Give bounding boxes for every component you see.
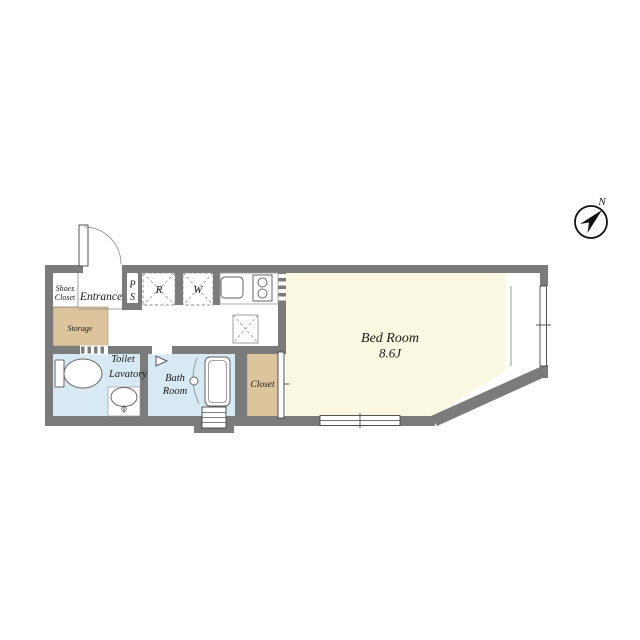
toilet-lavatory-label-2: Lavatory <box>108 369 147 380</box>
bedroom-size-label: 8.6J <box>379 346 402 361</box>
floorplan-canvas: Shoes Closet Entrance Storage P S R W To… <box>0 0 640 640</box>
wall-left <box>45 265 53 426</box>
compass-north-label: N <box>597 196 606 208</box>
closet-label: Closet <box>250 380 275 390</box>
entrance-door-leaf <box>79 225 88 266</box>
wall-w-counter <box>213 265 220 305</box>
shoes-closet-label-2: Closet <box>55 293 76 302</box>
wall-right-top <box>540 265 548 286</box>
pipe-space-label-1: P <box>128 280 135 291</box>
toilet-lavatory-label-1: Toilet <box>111 354 136 365</box>
window-right <box>540 286 547 366</box>
wall-toilet-bath <box>140 346 148 426</box>
bath-door-opening <box>152 346 172 355</box>
entrance-label: Entrance <box>79 291 122 303</box>
bath-room-label-1: Bath <box>165 373 185 384</box>
wall-right-bottom <box>540 365 548 378</box>
wall-bath-closet <box>235 346 247 426</box>
storage-label: Storage <box>68 324 93 333</box>
shoes-closet-label-1: Shoes <box>56 284 75 293</box>
entrance-door-swing-arc <box>84 227 121 264</box>
bath-room-label-2: Room <box>162 386 188 397</box>
pipe-space-label-2: S <box>130 292 135 303</box>
wall-kitchen-bedroom <box>278 265 286 354</box>
stove-burner-2 <box>258 289 267 298</box>
bath-door-knob <box>190 377 198 385</box>
toilet-tank-icon <box>55 360 64 387</box>
wall-r-w <box>175 265 183 305</box>
closet-door <box>278 352 284 418</box>
refrigerator-label: R <box>155 284 163 296</box>
stove-burner-1 <box>258 278 267 287</box>
entrance-opening <box>83 265 122 274</box>
washer-label: W <box>193 284 203 296</box>
compass-icon: N <box>575 196 607 238</box>
toilet-bowl-icon <box>64 359 102 388</box>
kitchen-sink-icon <box>221 277 243 298</box>
lavatory-sink-icon <box>111 388 137 407</box>
floorplan-drawing: Shoes Closet Entrance Storage P S R W To… <box>0 0 640 640</box>
bedroom-label: Bed Room <box>361 331 419 346</box>
